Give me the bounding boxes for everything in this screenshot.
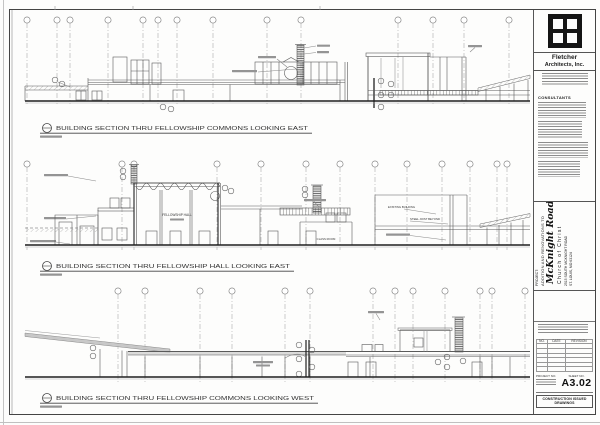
section-1-title-text: BUILDING SECTION THRU FELLOWSHIP COMMONS…: [56, 126, 309, 132]
project-address2: ST. LOUIS, MO 63124: [569, 202, 573, 286]
section-3-grid-bubbles: [115, 288, 528, 384]
project-name: McKnight Road: [546, 202, 556, 284]
consultants-heading: CONSULTANTS: [538, 95, 591, 100]
firm-name: Fletcher Architects, Inc.: [534, 52, 595, 71]
revision-row: [537, 367, 593, 372]
consultants-block: CONSULTANTS: [534, 93, 595, 202]
section-3-scale-note: [40, 406, 62, 408]
section-3-title: BUILDING SECTION THRU FELLOWSHIP COMMONS…: [40, 394, 318, 408]
sheet-number: A3.02: [560, 378, 593, 390]
section-2-scale-note: [40, 274, 62, 276]
project-no-label: PROJECT NO.: [536, 374, 556, 378]
title-block: Fletcher Architects, Inc. CONSULTANTS PR…: [534, 10, 595, 414]
section-1-title: BUILDING SECTION THRU FELLOWSHIP COMMONS…: [40, 124, 312, 138]
project-number-block: PROJECT NO.: [536, 374, 560, 390]
project-block: PROJECT: ADDITION AND RENOVATIONS TO McK…: [534, 202, 595, 291]
fletcher-architects-logo-icon: [548, 14, 582, 48]
firm-address-block: [534, 71, 595, 93]
project-address1: 2515 SOUTH MCKNIGHT ROAD: [564, 202, 568, 286]
class-room-label: CLASS ROOM: [317, 237, 336, 241]
section-1-scale-note: [40, 136, 62, 138]
section-2-title-text: BUILDING SECTION THRU FELLOWSHIP HALL LO…: [56, 264, 291, 270]
project-name2: Church of Christ: [557, 202, 563, 284]
firm-name-line1: Fletcher: [534, 55, 595, 62]
revision-table: NO. DATE REVISION: [536, 339, 593, 372]
section-1-drawing: [24, 17, 530, 112]
project-label: PROJECT:: [535, 202, 539, 286]
sheet-number-block: SHEET NO. A3.02: [560, 374, 593, 390]
section-2-drawing: FELLOWSHIP HALL CLASS ROOM EXISTING BUIL…: [24, 161, 530, 250]
steel-joist-label: STEEL JOIST BEYOND: [410, 217, 440, 221]
section-2-grid-bubbles: [24, 161, 510, 250]
existing-building-label: EXISTING BUILDING: [388, 205, 415, 209]
sheet-info-block: PROJECT NO. SHEET NO. A3.02: [536, 374, 593, 393]
section-2-title: BUILDING SECTION THRU FELLOWSHIP HALL LO…: [40, 262, 294, 276]
disclaimer-block: [534, 322, 595, 339]
firm-name-line2: Architects, Inc.: [534, 62, 595, 68]
fellowship-hall-label: FELLOWSHIP HALL: [162, 213, 192, 217]
section-3-drawing: [25, 288, 530, 384]
section-3-title-text: BUILDING SECTION THRU FELLOWSHIP COMMONS…: [56, 396, 315, 402]
issue-note: CONSTRUCTION ISSUED DRAWINGS: [536, 395, 593, 408]
title-block-spacer: [534, 291, 595, 322]
firm-logo-area: [534, 10, 595, 52]
drawing-canvas: BUILDING SECTION THRU FELLOWSHIP COMMONS…: [0, 0, 600, 425]
drawing-sheet: BUILDING SECTION THRU FELLOWSHIP COMMONS…: [0, 0, 600, 425]
project-block-rotated: PROJECT: ADDITION AND RENOVATIONS TO McK…: [534, 202, 592, 288]
